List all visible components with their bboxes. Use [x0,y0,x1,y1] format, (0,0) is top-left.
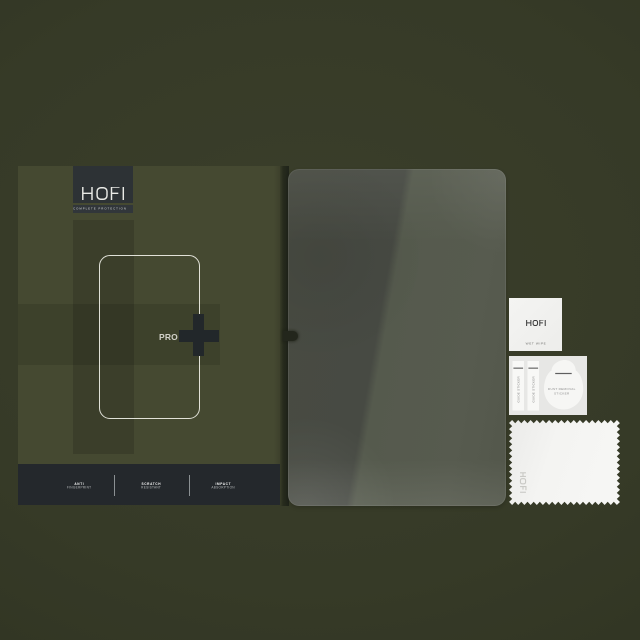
svg-text:DUST REMOVAL: DUST REMOVAL [548,387,576,391]
svg-text:STICKER: STICKER [554,392,570,396]
svg-text:GUIDE STICKER: GUIDE STICKER [516,376,520,402]
svg-text:GUIDE STICKER: GUIDE STICKER [531,376,535,402]
